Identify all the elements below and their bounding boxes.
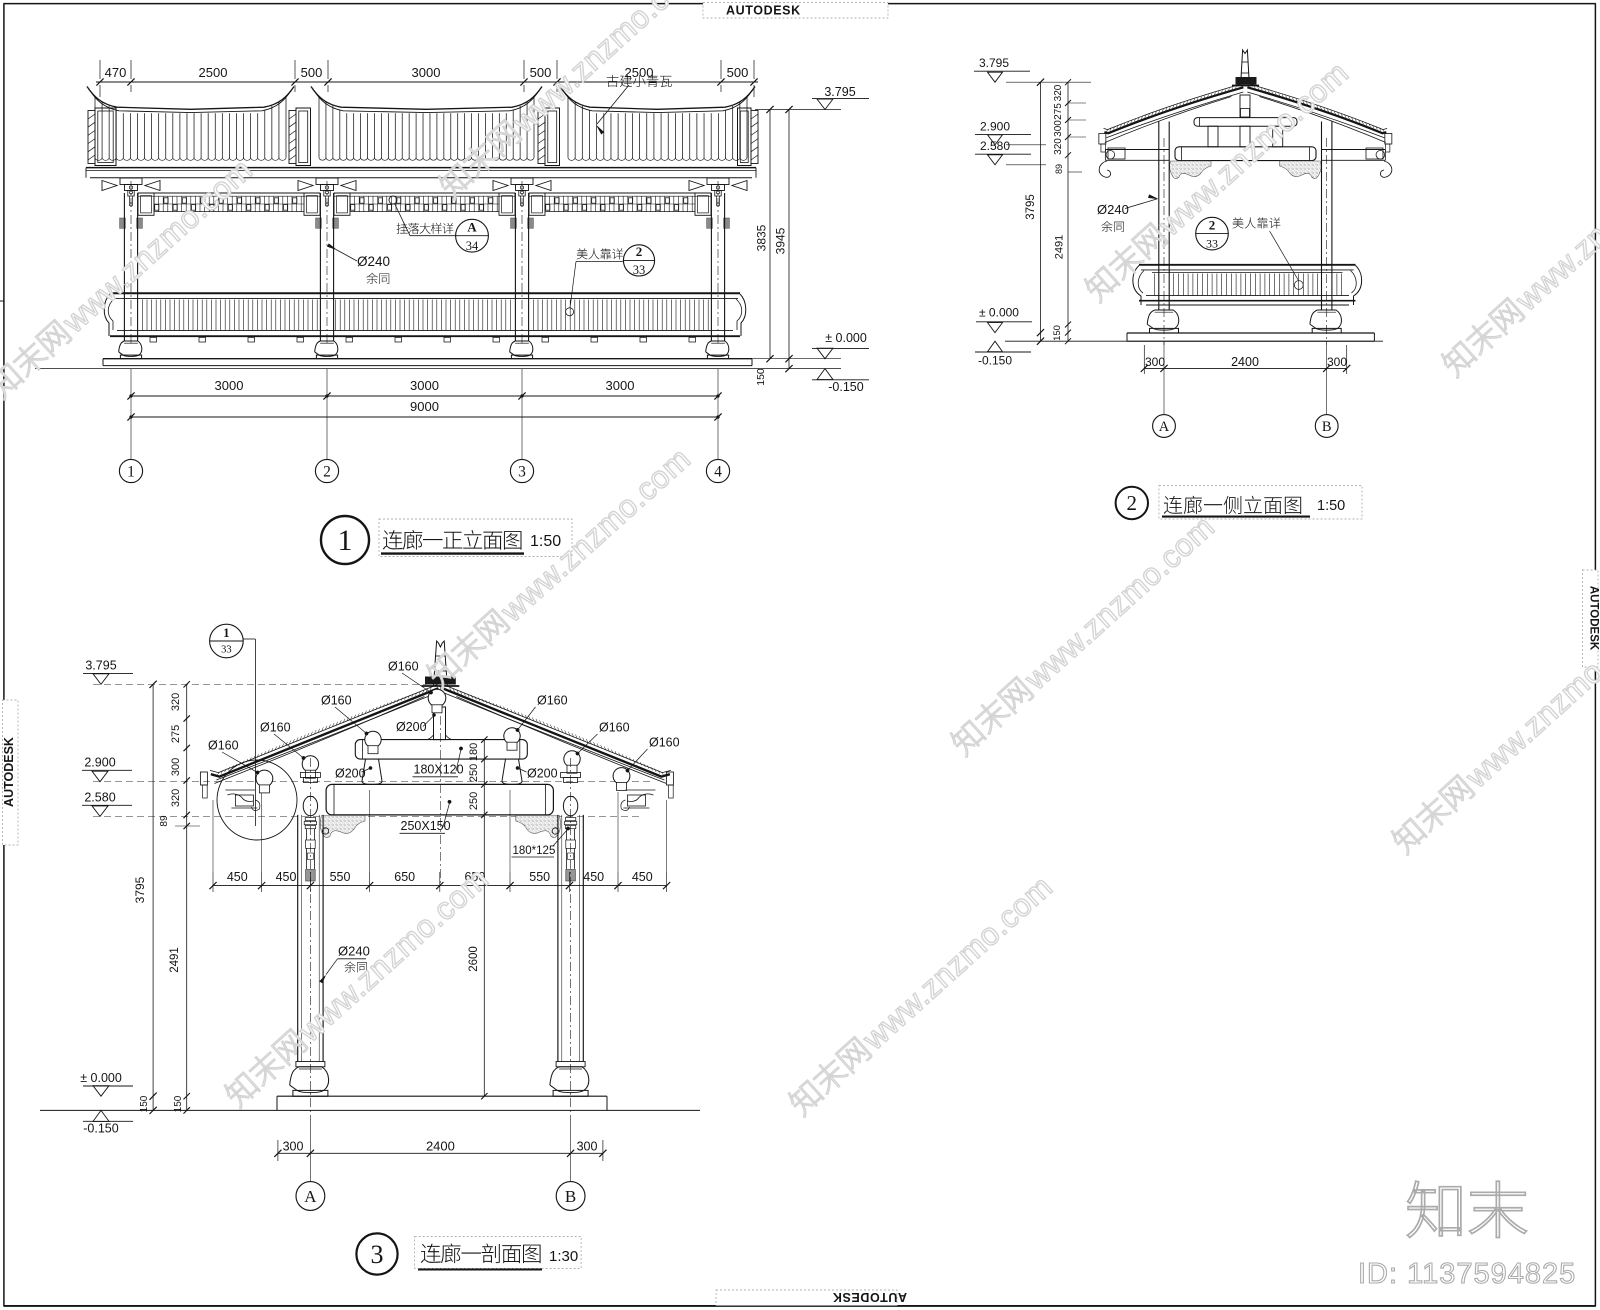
- svg-text:3000: 3000: [412, 65, 441, 80]
- svg-text:300: 300: [577, 1140, 598, 1154]
- svg-text:Ø160: Ø160: [208, 739, 239, 753]
- svg-text:AUTODESK: AUTODESK: [726, 4, 801, 18]
- svg-text:150: 150: [755, 368, 767, 386]
- svg-text:2: 2: [1127, 491, 1138, 515]
- svg-text:ID: 1137594825: ID: 1137594825: [1358, 1258, 1576, 1290]
- svg-text:2491: 2491: [169, 947, 181, 973]
- svg-text:2491: 2491: [1054, 235, 1066, 259]
- svg-text:3945: 3945: [774, 227, 788, 254]
- svg-text:± 0.000: ± 0.000: [80, 1071, 122, 1085]
- svg-text:33: 33: [633, 263, 646, 277]
- svg-text:500: 500: [301, 65, 323, 80]
- svg-text:89: 89: [1054, 164, 1064, 174]
- svg-text:250: 250: [468, 792, 480, 810]
- svg-text:Ø200: Ø200: [527, 767, 558, 781]
- svg-text:33: 33: [1206, 237, 1218, 251]
- svg-text:2: 2: [1209, 218, 1216, 233]
- svg-text:2: 2: [323, 463, 331, 480]
- svg-text:1: 1: [338, 524, 353, 557]
- svg-text:Ø240: Ø240: [357, 254, 390, 269]
- svg-text:250: 250: [468, 764, 480, 782]
- svg-text:Ø160: Ø160: [537, 694, 568, 708]
- svg-text:3000: 3000: [215, 378, 244, 393]
- svg-text:B: B: [1322, 419, 1332, 435]
- svg-text:450: 450: [276, 870, 297, 884]
- svg-text:300: 300: [1053, 120, 1064, 137]
- svg-text:3.795: 3.795: [85, 659, 116, 673]
- svg-text:A: A: [304, 1187, 317, 1206]
- svg-text:450: 450: [583, 870, 604, 884]
- svg-text:1: 1: [127, 463, 135, 480]
- svg-text:2600: 2600: [468, 946, 480, 972]
- svg-text:34: 34: [466, 239, 479, 253]
- svg-text:3795: 3795: [133, 876, 147, 903]
- svg-text:Ø160: Ø160: [260, 721, 291, 735]
- svg-text:± 0.000: ± 0.000: [979, 306, 1019, 320]
- svg-text:550: 550: [529, 870, 550, 884]
- svg-text:4: 4: [714, 463, 722, 480]
- svg-text:3.795: 3.795: [979, 56, 1009, 70]
- svg-text:Ø240: Ø240: [1097, 202, 1129, 217]
- svg-text:500: 500: [727, 65, 749, 80]
- svg-text:Ø200: Ø200: [396, 720, 427, 734]
- svg-text:9000: 9000: [410, 399, 439, 414]
- svg-text:320: 320: [170, 693, 182, 711]
- svg-text:2.580: 2.580: [980, 139, 1010, 153]
- svg-text:1:30: 1:30: [549, 1248, 578, 1265]
- svg-text:Ø160: Ø160: [599, 721, 630, 735]
- svg-text:300: 300: [283, 1140, 304, 1154]
- svg-text:300: 300: [170, 758, 182, 776]
- svg-text:Ø200: Ø200: [335, 767, 366, 781]
- svg-text:2.580: 2.580: [84, 791, 115, 805]
- svg-text:-0.150: -0.150: [978, 354, 1012, 368]
- svg-text:AUTODESK: AUTODESK: [2, 737, 16, 807]
- svg-text:2400: 2400: [1231, 355, 1259, 369]
- svg-text:275: 275: [1053, 103, 1064, 120]
- svg-text:320: 320: [1053, 138, 1064, 155]
- svg-text:Ø160: Ø160: [321, 694, 352, 708]
- svg-text:275: 275: [170, 725, 182, 743]
- svg-text:180: 180: [468, 743, 480, 761]
- svg-text:450: 450: [227, 870, 248, 884]
- svg-text:3795: 3795: [1025, 194, 1037, 220]
- svg-text:650: 650: [394, 870, 415, 884]
- svg-text:-0.150: -0.150: [828, 380, 863, 394]
- svg-text:Ø160: Ø160: [388, 660, 419, 674]
- svg-text:A: A: [1159, 419, 1170, 435]
- svg-text:150: 150: [173, 1095, 184, 1112]
- svg-text:3: 3: [518, 463, 526, 480]
- svg-text:-0.150: -0.150: [83, 1122, 118, 1136]
- svg-text:320: 320: [170, 789, 182, 807]
- svg-text:300: 300: [1327, 355, 1347, 369]
- svg-text:B: B: [565, 1187, 576, 1206]
- svg-text:3: 3: [371, 1240, 384, 1269]
- svg-text:A: A: [467, 220, 477, 235]
- svg-text:550: 550: [330, 870, 351, 884]
- svg-text:89: 89: [159, 815, 170, 827]
- svg-text:1: 1: [223, 626, 229, 640]
- svg-text:300: 300: [1145, 355, 1165, 369]
- svg-text:2.900: 2.900: [980, 120, 1010, 134]
- svg-text:2.900: 2.900: [84, 756, 115, 770]
- svg-text:180*125: 180*125: [513, 845, 556, 857]
- svg-text:3835: 3835: [755, 224, 769, 251]
- svg-text:2500: 2500: [199, 65, 228, 80]
- svg-text:3000: 3000: [606, 378, 635, 393]
- svg-text:AUTODESK: AUTODESK: [1588, 586, 1600, 651]
- svg-text:33: 33: [221, 645, 232, 656]
- svg-text:3.795: 3.795: [824, 85, 855, 99]
- svg-text:150: 150: [1052, 325, 1063, 341]
- svg-text:1:50: 1:50: [1317, 498, 1345, 514]
- svg-text:320: 320: [1053, 84, 1064, 101]
- svg-text:2400: 2400: [426, 1139, 455, 1154]
- svg-text:Ø160: Ø160: [649, 736, 680, 750]
- svg-text:AUTODESK: AUTODESK: [832, 1290, 907, 1304]
- svg-text:150: 150: [139, 1095, 150, 1112]
- svg-text:2: 2: [636, 244, 643, 259]
- svg-text:3000: 3000: [410, 378, 439, 393]
- svg-text:470: 470: [105, 65, 127, 80]
- svg-text:± 0.000: ± 0.000: [825, 331, 867, 345]
- svg-text:450: 450: [632, 870, 653, 884]
